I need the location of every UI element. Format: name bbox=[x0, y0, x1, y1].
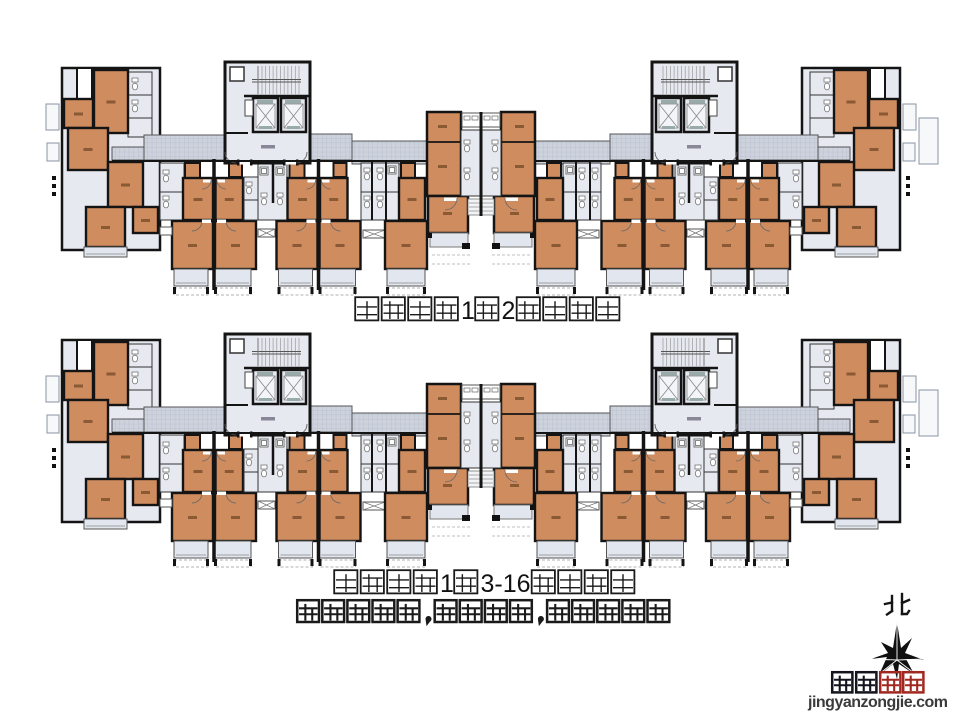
svg-text:3-16: 3-16 bbox=[481, 570, 531, 598]
svg-text:2: 2 bbox=[502, 297, 516, 325]
svg-text:1: 1 bbox=[440, 570, 454, 598]
svg-text:1: 1 bbox=[461, 297, 475, 325]
svg-text:jingyanzongjie.com: jingyanzongjie.com bbox=[807, 694, 948, 711]
